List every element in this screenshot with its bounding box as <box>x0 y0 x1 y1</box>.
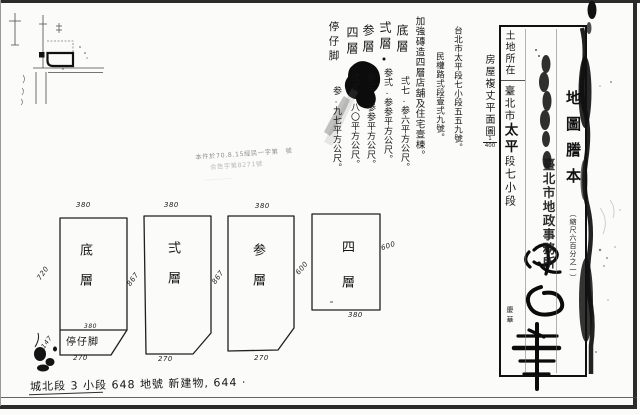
office-stamp-text: 臺北市地政事務所 <box>541 158 554 270</box>
land-location-divider <box>501 80 525 81</box>
location-hand-section: 太平 <box>502 123 518 156</box>
location-sketch-map <box>9 13 104 105</box>
border-bottom-thin <box>0 397 637 398</box>
scanned-land-registry-document: 土地所在 臺北市太平段七小段 臺北市地政事務所 地圖謄本 （縮尺六百分之一） 慶… <box>0 0 640 415</box>
floor-label-fourth: 四層 <box>346 26 358 58</box>
border-bottom-thick <box>0 405 637 409</box>
verification-stamp: 本件於70.8.15經民一字第 號 合告字第8271號 ………… <box>195 144 319 185</box>
dim-ground-bottom: 270 <box>73 355 88 362</box>
dim-third-top: 380 <box>255 203 270 210</box>
survey-cross-icon <box>9 13 21 45</box>
plan-porch-label: 停仔脚 <box>66 333 99 348</box>
floor-label-third: 参層 <box>362 24 374 56</box>
subject-block-filled <box>39 52 45 58</box>
floor-label-second: 弍層 <box>379 21 391 53</box>
dim-porch-height: 147 <box>40 335 53 350</box>
dim-ground-right: 867 <box>126 271 140 287</box>
subject-building-outline-bold <box>48 53 74 66</box>
dim-second-bottom: 270 <box>158 356 173 363</box>
floor-plan-outlines <box>60 214 380 355</box>
ink-specks <box>595 81 621 353</box>
box-column-divider-2 <box>556 29 557 373</box>
location-hand-subsection: 七小段 <box>504 168 517 209</box>
road-lines-lower <box>36 72 46 104</box>
box-column-divider-1 <box>525 29 526 373</box>
transcript-title: 地圖謄本 <box>565 90 580 194</box>
location-print-duan: 段 <box>504 156 516 169</box>
road-line-horizontal <box>33 68 104 73</box>
plan-label-third: 参層 <box>251 243 264 303</box>
plan-label-second: 弍層 <box>166 241 179 301</box>
floor-area-third: 参弍.参参平方公尺。 <box>365 73 374 169</box>
ink-dot <box>383 58 386 61</box>
dim-fourth-bottom: 380 <box>348 312 363 319</box>
border-right <box>633 0 637 409</box>
tiny-glyph-marks <box>56 23 62 33</box>
corner-blob <box>588 1 597 19</box>
faint-stamp-arc <box>600 200 614 234</box>
border-top <box>0 0 640 3</box>
sketch-dots <box>62 46 87 70</box>
floor-label-ground: 底層 <box>396 24 408 56</box>
dim-ground-left: 720 <box>36 265 50 281</box>
address-line-2: 民權路弍段壹弍九號。 <box>435 52 444 142</box>
lot-boundary-dashed <box>47 41 73 52</box>
dim-fourth-right: 600 <box>380 241 396 252</box>
dim-porch-width: 380 <box>84 324 97 330</box>
dim-third-bottom: 270 <box>254 355 269 362</box>
land-location-header: 土地所在 <box>503 30 513 76</box>
plan-label-fourth: 四層 <box>340 240 353 310</box>
dim-ground-top: 380 <box>76 202 91 209</box>
location-print-city: 臺北市 <box>504 85 516 123</box>
floor-area-fourth: 弍弍.八〇平方公尺。 <box>349 73 358 169</box>
footer-lot-line: 城北段 3 小段 648 地號 新建物, 644 · <box>30 374 247 395</box>
plan-label-ground: 底層 <box>78 243 91 303</box>
dim-second-top: 380 <box>164 202 179 209</box>
corner-blob-2 <box>587 22 592 34</box>
clerk-initials: 慶華 <box>506 306 513 326</box>
floor-area-ground: 弍七.参六平方公尺。 <box>399 76 408 172</box>
road-line-vertical <box>39 15 47 68</box>
dim-fourth-left: 600 <box>295 261 310 277</box>
scale-note: （縮尺六百分之一） <box>569 210 576 282</box>
floor-label-porch: 停仔脚 <box>328 21 339 65</box>
floor-area-second: 参弍.参参平方公尺。 <box>382 68 391 164</box>
dim-second-right: 867 <box>211 269 225 285</box>
building-description: 加強磚造四層店舖及住宅壹棟。 <box>414 16 424 160</box>
scale-denominator: 400 <box>483 142 497 149</box>
plan-scale-fraction: 1 400 <box>483 136 497 149</box>
tiny-street-label-squiggles <box>21 75 25 105</box>
border-left <box>0 0 1 406</box>
address-line-1: 台北市太平段七小段五五九號。 <box>453 26 462 152</box>
plan-title: 房屋複丈平面圖 <box>483 54 493 138</box>
floor-area-porch: 参.九七平方公尺。 <box>331 86 340 173</box>
land-location-value: 臺北市太平段七小段 <box>502 85 516 209</box>
